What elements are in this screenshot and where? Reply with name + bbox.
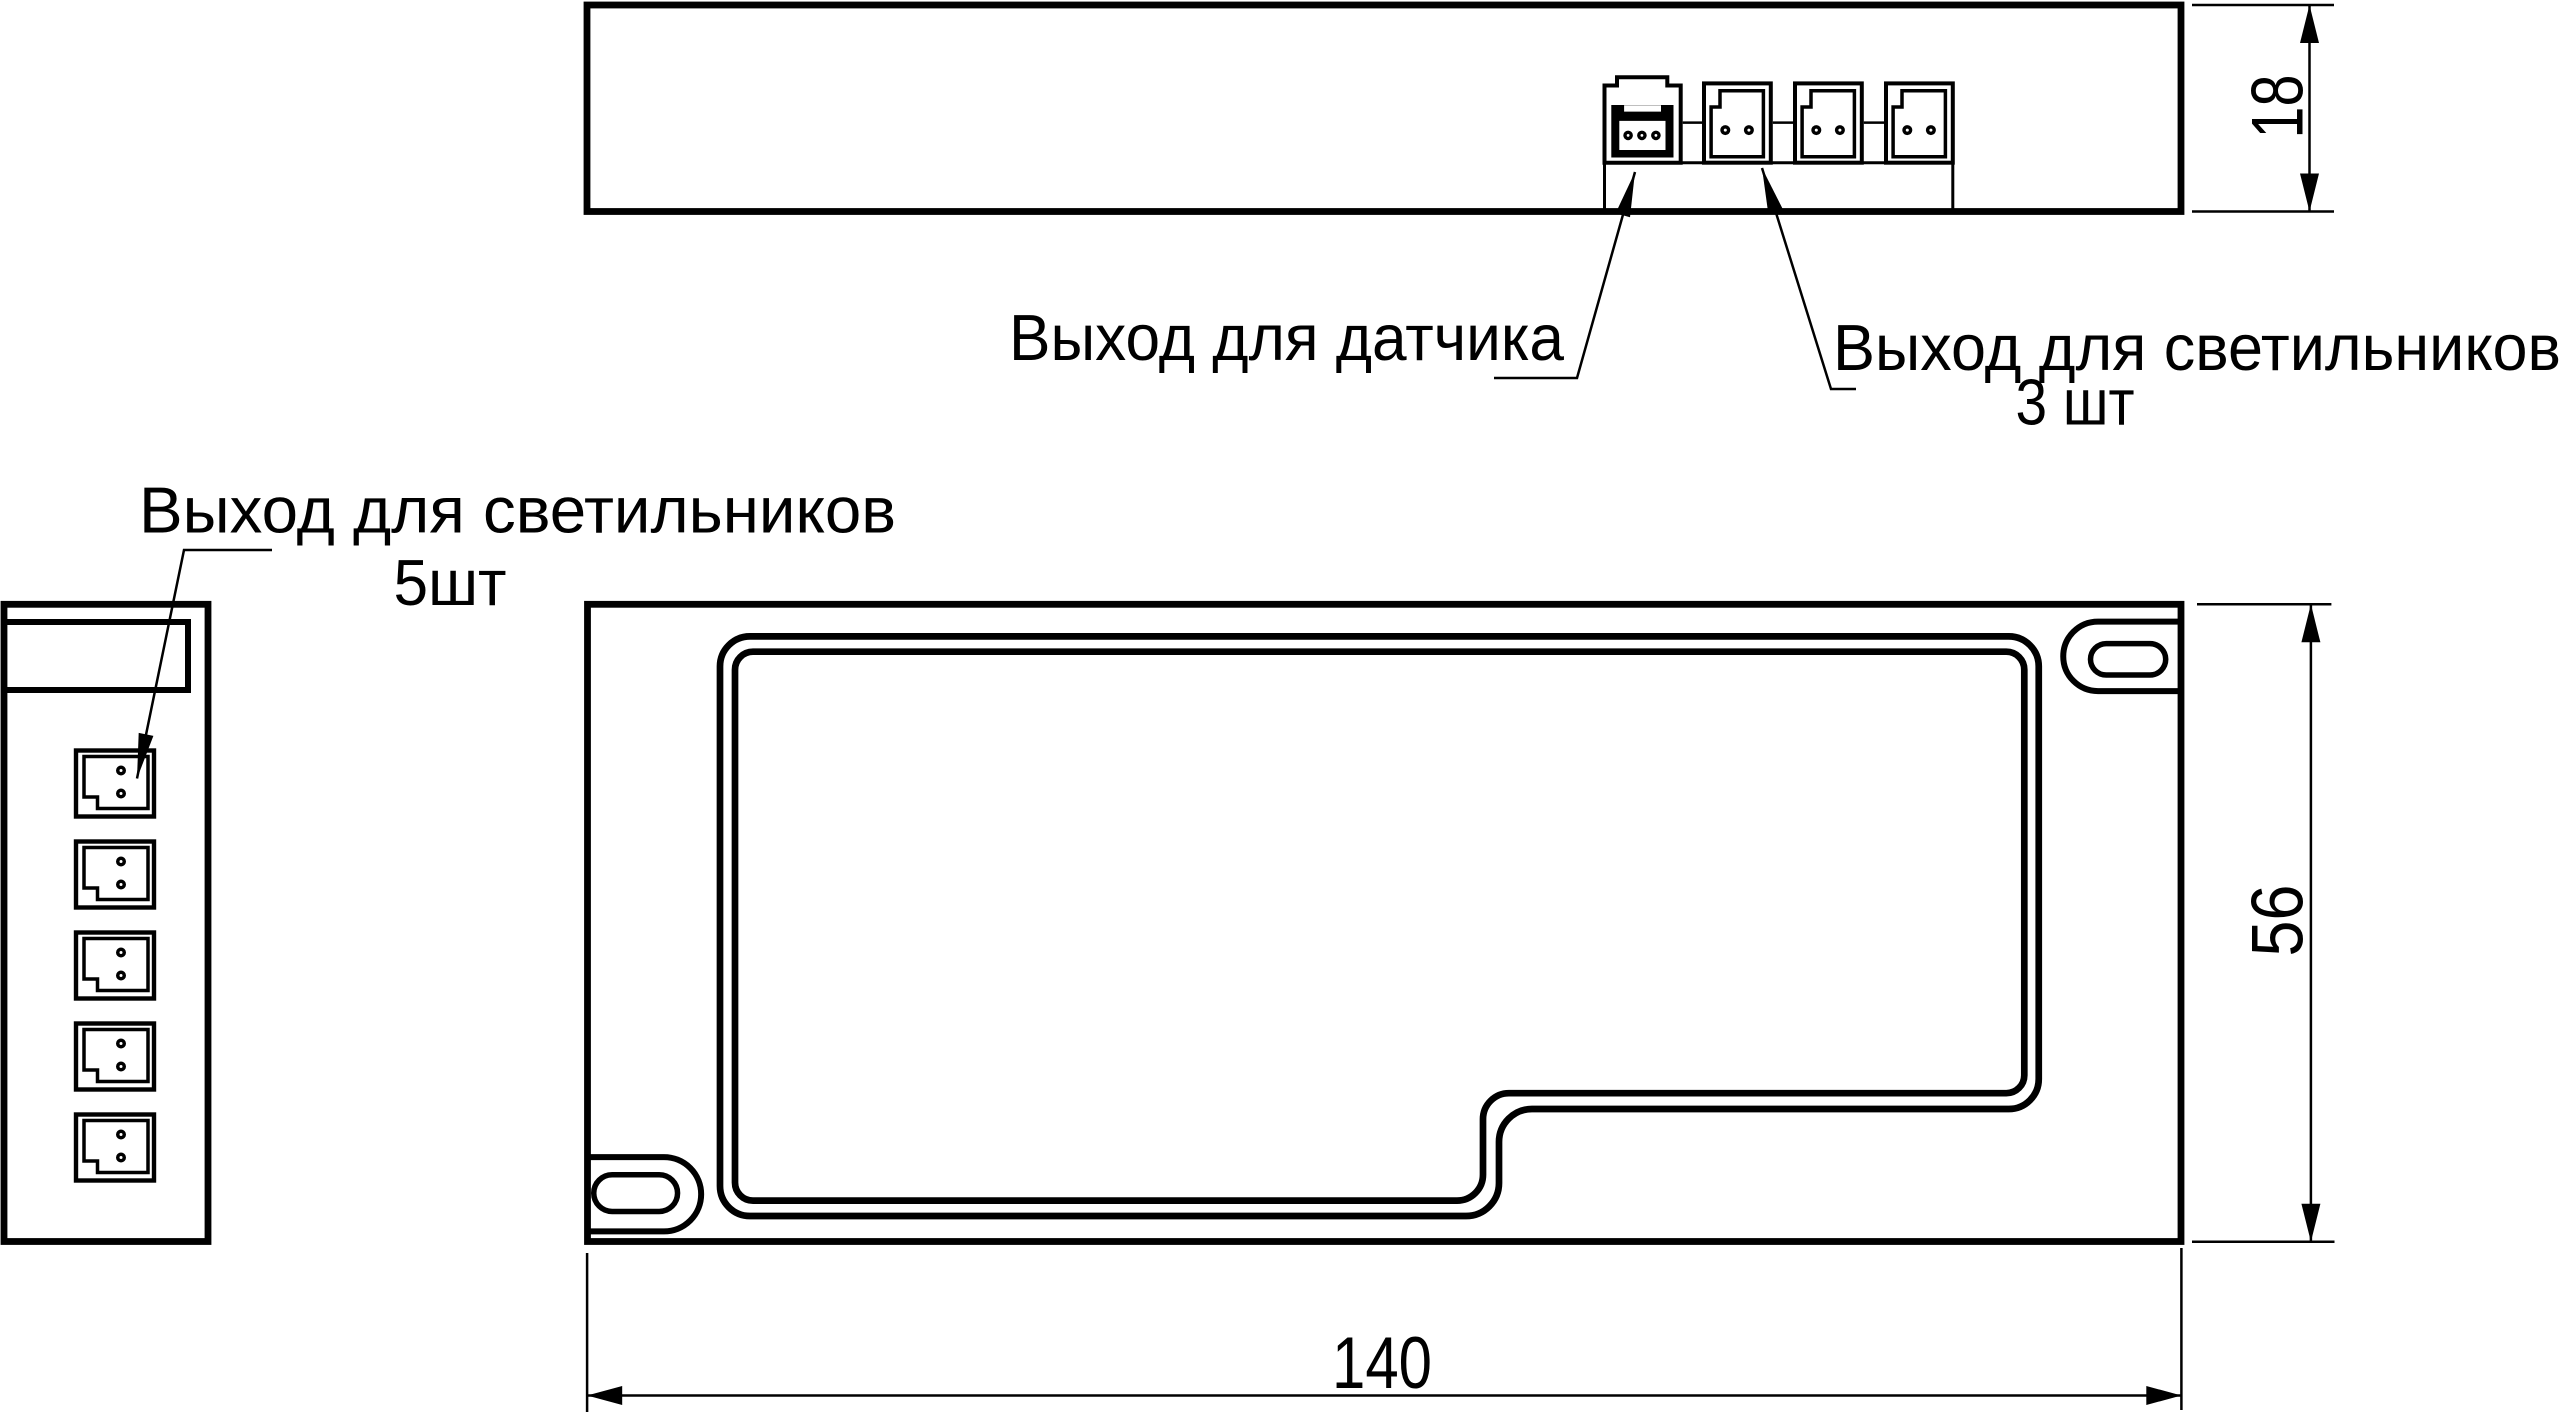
- svg-text:5шт: 5шт: [394, 546, 507, 619]
- svg-text:Выход для светильников: Выход для светильников: [139, 474, 896, 547]
- svg-text:140: 140: [1332, 1323, 1432, 1404]
- svg-text:Выход для светильников: Выход для светильников: [1833, 311, 2560, 384]
- svg-text:56: 56: [2238, 885, 2319, 957]
- svg-text:3 шт: 3 шт: [2016, 366, 2135, 439]
- svg-text:18: 18: [2238, 75, 2319, 139]
- svg-text:Выход для датчика: Выход для датчика: [1009, 301, 1565, 374]
